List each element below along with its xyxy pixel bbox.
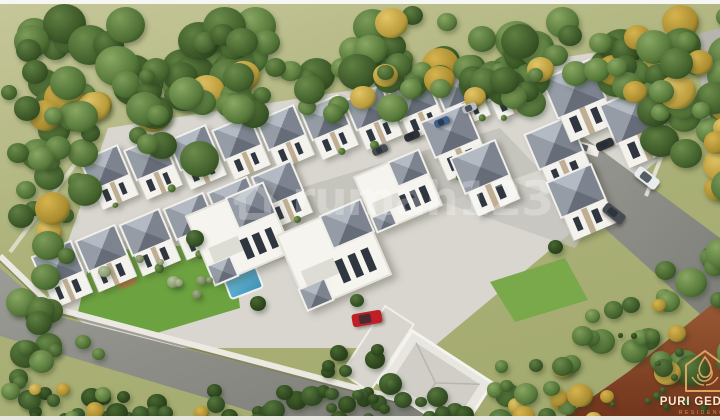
parked-car-1 — [403, 129, 421, 143]
bottom-border-strip — [0, 416, 720, 420]
car-windshield — [465, 105, 473, 112]
white-car — [633, 165, 661, 190]
car-windshield — [375, 147, 383, 154]
car-windshield — [358, 314, 372, 324]
developer-logo: PURI GEDONG RESIDENCE — [648, 348, 720, 416]
parked-car-3 — [461, 101, 478, 114]
logo-subtitle: RESIDENCE — [648, 410, 720, 416]
car-windshield — [607, 207, 619, 219]
car-windshield — [437, 119, 445, 126]
parked-car-4 — [371, 143, 389, 157]
car-layer — [0, 0, 720, 420]
red-car — [351, 309, 383, 327]
parked-car-5 — [595, 137, 615, 152]
aerial-render-housing-estate: rumah123 PURI GEDONG RESIDENCE — [0, 0, 720, 420]
car-windshield — [407, 133, 415, 140]
top-border-strip — [0, 0, 720, 4]
car-windshield — [639, 170, 652, 183]
car-windshield — [599, 141, 608, 149]
parked-car-2 — [433, 115, 451, 129]
house-monogram-icon — [683, 348, 720, 394]
gray-car — [601, 202, 627, 225]
logo-title: PURI GEDONG — [648, 396, 720, 408]
